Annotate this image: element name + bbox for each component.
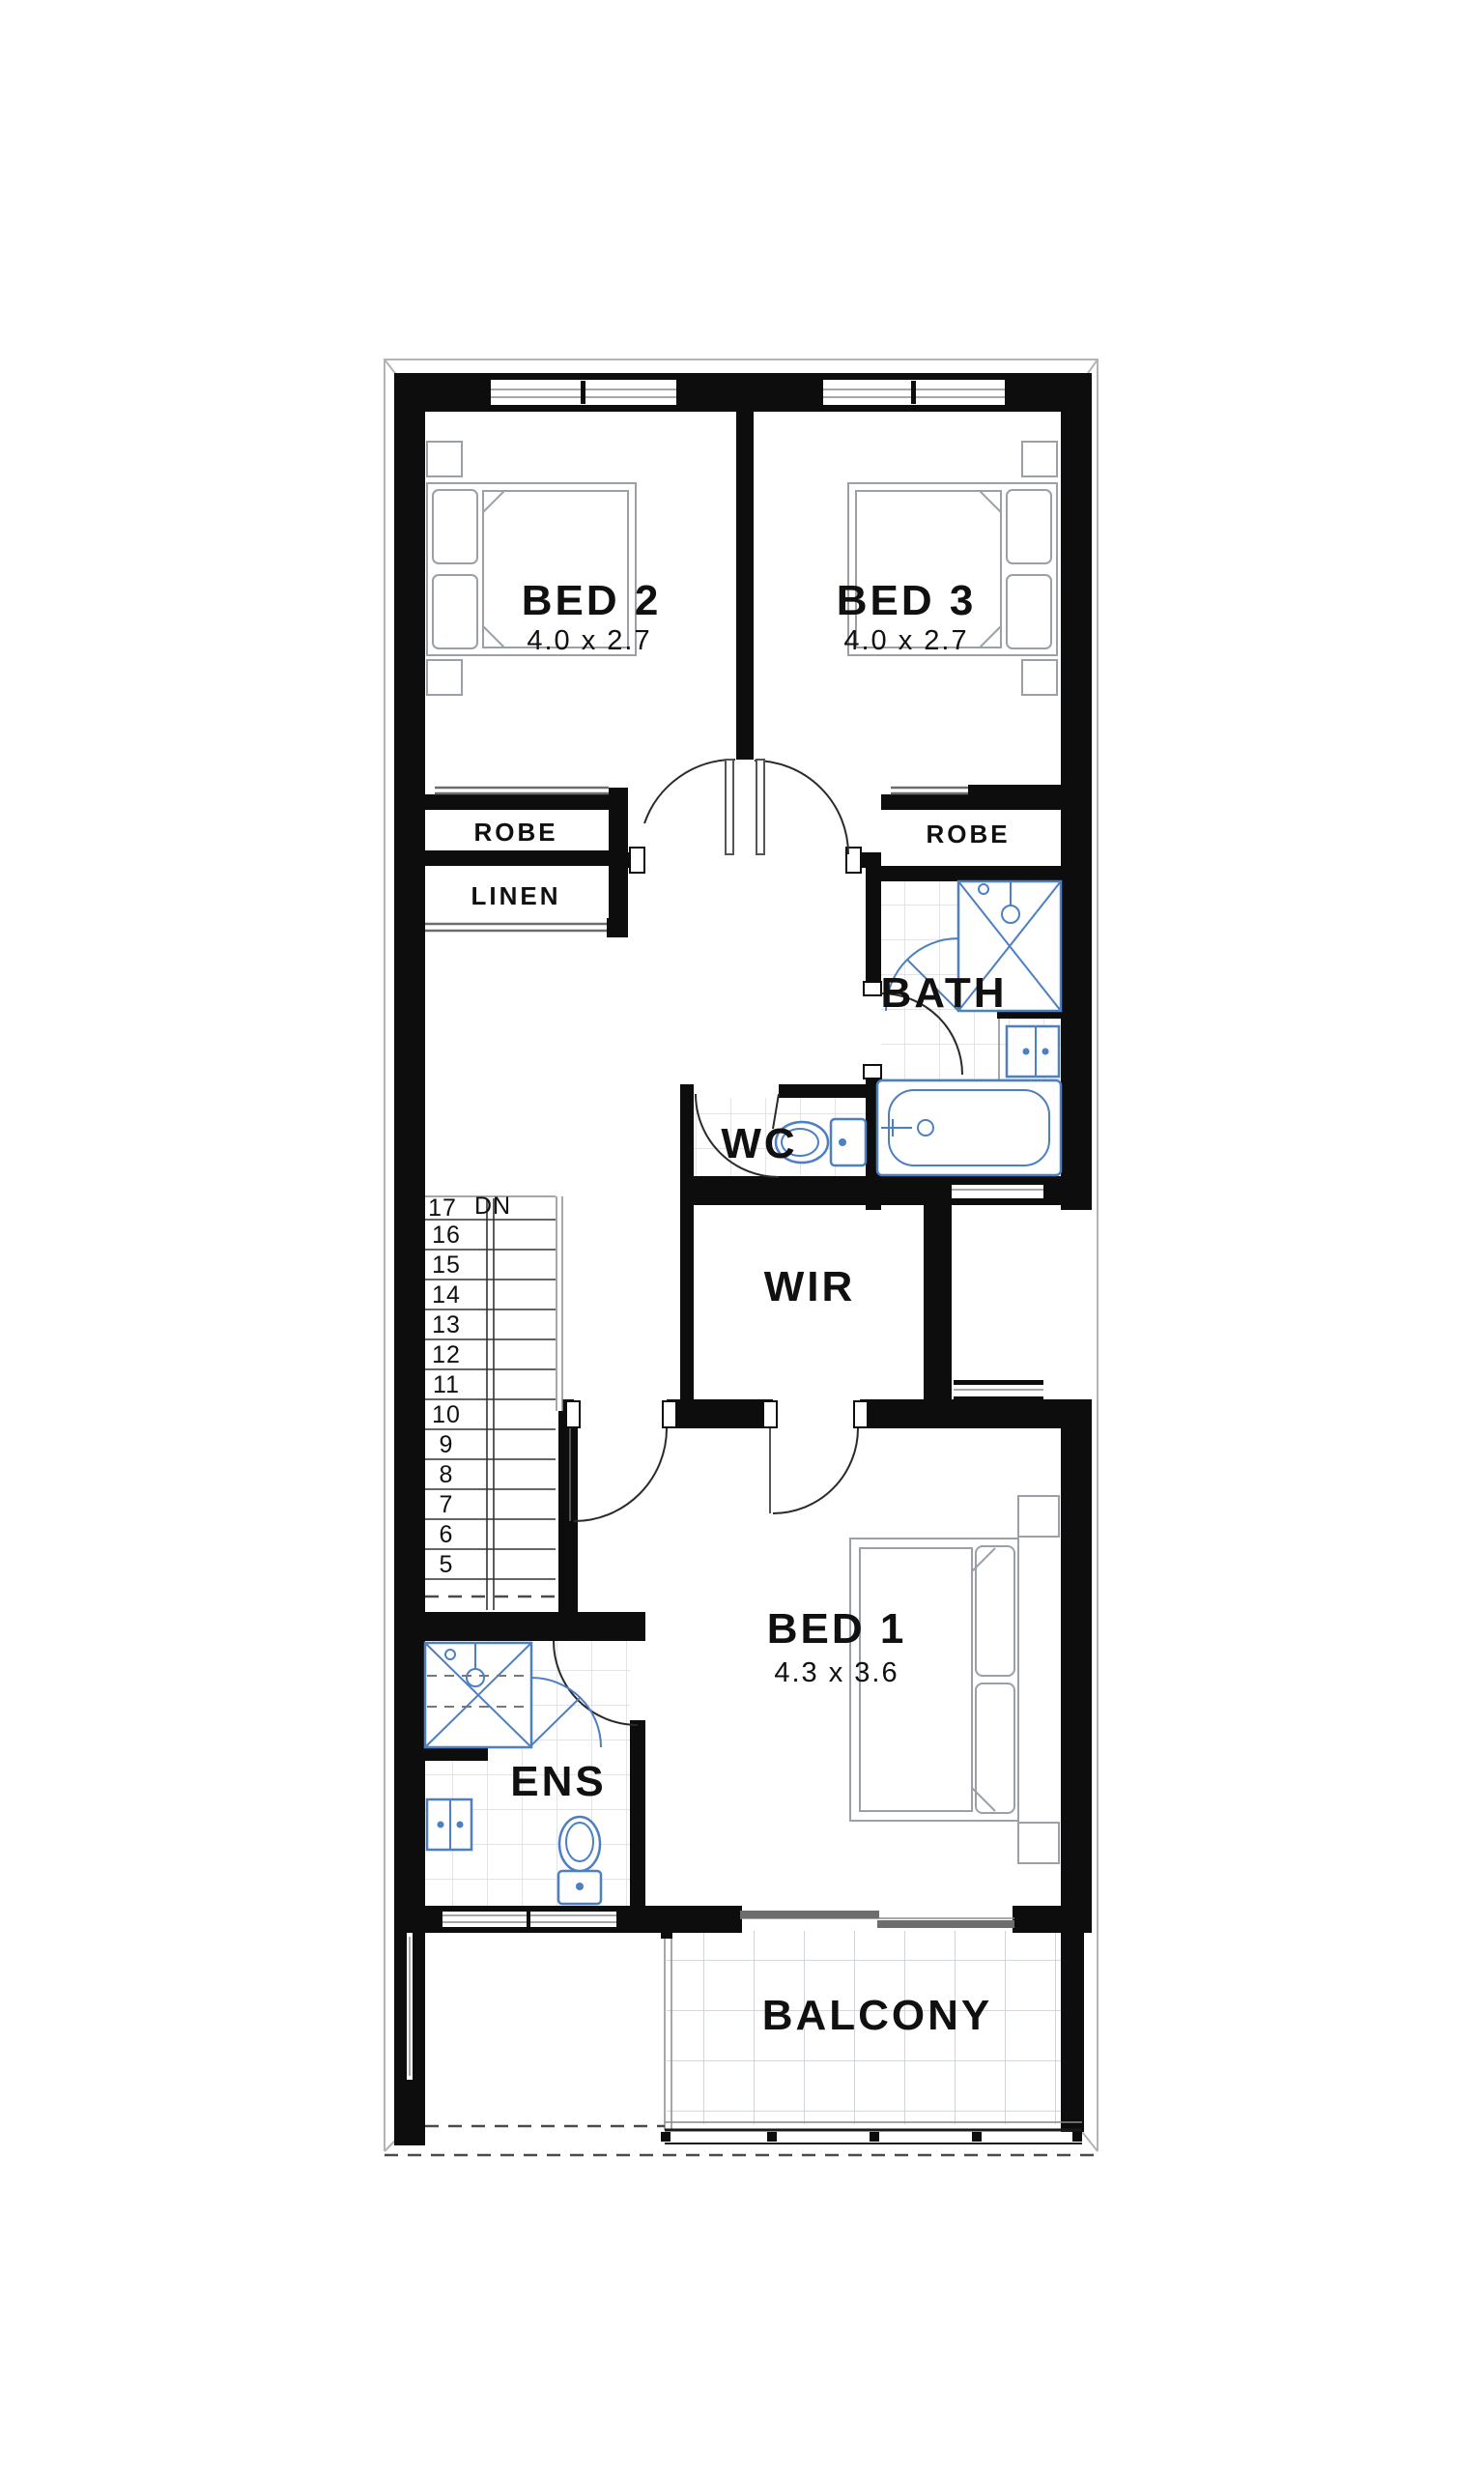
ens-east-wall	[630, 1720, 645, 1906]
left-exterior-wall	[394, 373, 425, 1933]
ens-vanity	[427, 1799, 471, 1850]
parapet-inner	[413, 1933, 425, 2080]
pillow	[976, 1546, 1014, 1676]
bedside-table	[1022, 660, 1057, 695]
svg-text:9: 9	[440, 1431, 454, 1458]
door-jamb	[854, 1401, 868, 1427]
wall-segment	[616, 1906, 742, 1933]
svg-text:11: 11	[433, 1371, 460, 1398]
bed2-bed	[427, 442, 636, 695]
bed1-highlight-window	[954, 1380, 1043, 1401]
wall-segment	[1013, 1906, 1092, 1933]
bathtub	[877, 1080, 1061, 1175]
bedside-table	[427, 660, 462, 695]
floor-plan-page: 17 DN 16 15 14 13 12 11 10 9 8 7 6 5	[0, 0, 1484, 2474]
robe-linen-divider-wall	[423, 850, 628, 866]
pillow	[1007, 575, 1051, 648]
bath-west-wall	[866, 852, 881, 995]
robe-left-front-wall	[423, 794, 628, 810]
door-jamb	[864, 1065, 881, 1079]
bed1-label: BED 1	[767, 1605, 907, 1653]
bed2-window	[491, 373, 676, 412]
ens-shower-stub-wall	[425, 1747, 488, 1761]
bath-label: BATH	[881, 969, 1008, 1017]
robe-right-return-wall	[968, 785, 1061, 810]
svg-text:12: 12	[432, 1341, 461, 1368]
bed3-dims: 4.0 x 2.7	[843, 625, 968, 656]
linen-end-block	[607, 918, 628, 937]
bed2-label: BED 2	[522, 577, 662, 624]
wc-north-wall	[779, 1084, 866, 1098]
door-jamb	[630, 848, 644, 873]
bed3-door-arc	[755, 761, 848, 854]
bath-window	[952, 1180, 1043, 1203]
pillow	[433, 490, 477, 563]
wall-segment	[394, 1906, 442, 1933]
door-jamb	[566, 1401, 580, 1427]
ens-label: ENS	[510, 1758, 606, 1805]
bath-north-wall	[881, 866, 1061, 881]
door-jamb	[663, 1401, 676, 1427]
robe-right-label: ROBE	[926, 820, 1010, 849]
bedside-table	[1018, 1496, 1059, 1537]
hall-door-arc	[574, 1428, 667, 1521]
ens-window	[442, 1906, 616, 1933]
bedside-table	[1022, 442, 1057, 476]
wc-label: WC	[721, 1120, 797, 1167]
bed2-bed3-dividing-wall	[736, 412, 754, 760]
bed2-door-arc	[644, 760, 735, 823]
bed3-window	[823, 373, 1005, 412]
stair-direction-label: DN	[474, 1193, 511, 1220]
bath-vanity	[999, 1019, 1059, 1080]
svg-text:6: 6	[440, 1521, 454, 1548]
svg-text:7: 7	[440, 1491, 454, 1518]
bed3-door-leaf	[756, 760, 764, 854]
wall-segment	[676, 373, 823, 412]
bed1-north-wall	[860, 1399, 1092, 1428]
wir-door-arc	[773, 1428, 858, 1513]
bedside-table	[1018, 1823, 1059, 1863]
bed2-door-leaf	[726, 760, 733, 854]
right-exterior-wall-lower	[1061, 1399, 1092, 1933]
parapet-pier	[394, 2080, 425, 2145]
wir-west-wall	[680, 1205, 694, 1428]
linen-label: LINEN	[471, 881, 561, 910]
balcony-right-wall	[1061, 1933, 1084, 2132]
pillow	[1007, 490, 1051, 563]
bedside-table	[427, 442, 462, 476]
svg-text:14: 14	[432, 1281, 461, 1309]
svg-text:8: 8	[440, 1461, 454, 1488]
floor-plan-drawing: 17 DN 16 15 14 13 12 11 10 9 8 7 6 5	[0, 0, 1484, 2474]
bed3-bed	[848, 442, 1057, 695]
stair-top-tread-label: 17	[428, 1194, 457, 1222]
parapet-outer	[394, 1933, 407, 2080]
robe-right-front-wall	[881, 794, 968, 810]
balcony-label: BALCONY	[762, 1992, 993, 2039]
tiled-floors	[425, 881, 1061, 2124]
svg-text:16: 16	[432, 1222, 461, 1249]
right-exterior-wall-upper	[1061, 373, 1092, 1210]
svg-text:15: 15	[432, 1251, 461, 1279]
stair-east-wall	[558, 1411, 578, 1641]
wall-segment	[667, 1399, 773, 1428]
robe-left-label: ROBE	[473, 818, 557, 847]
door-jamb	[864, 982, 881, 995]
bed2-dims: 4.0 x 2.7	[527, 625, 651, 656]
pillow	[976, 1683, 1014, 1813]
stair-south-wall	[394, 1612, 645, 1641]
wir-label: WIR	[764, 1263, 856, 1310]
pillow	[433, 575, 477, 648]
bed3-label: BED 3	[837, 577, 977, 624]
ens-toilet	[558, 1817, 601, 1904]
svg-text:5: 5	[440, 1551, 454, 1578]
bed1-dims: 4.3 x 3.6	[774, 1657, 899, 1688]
recess-exterior-wall	[924, 1205, 952, 1399]
door-jamb	[763, 1401, 777, 1427]
staircase: 17 DN 16 15 14 13 12 11 10 9 8 7 6 5	[425, 1193, 562, 1610]
svg-text:10: 10	[432, 1401, 461, 1428]
svg-text:13: 13	[432, 1311, 461, 1338]
bed1-sliding-door	[740, 1911, 1014, 1928]
